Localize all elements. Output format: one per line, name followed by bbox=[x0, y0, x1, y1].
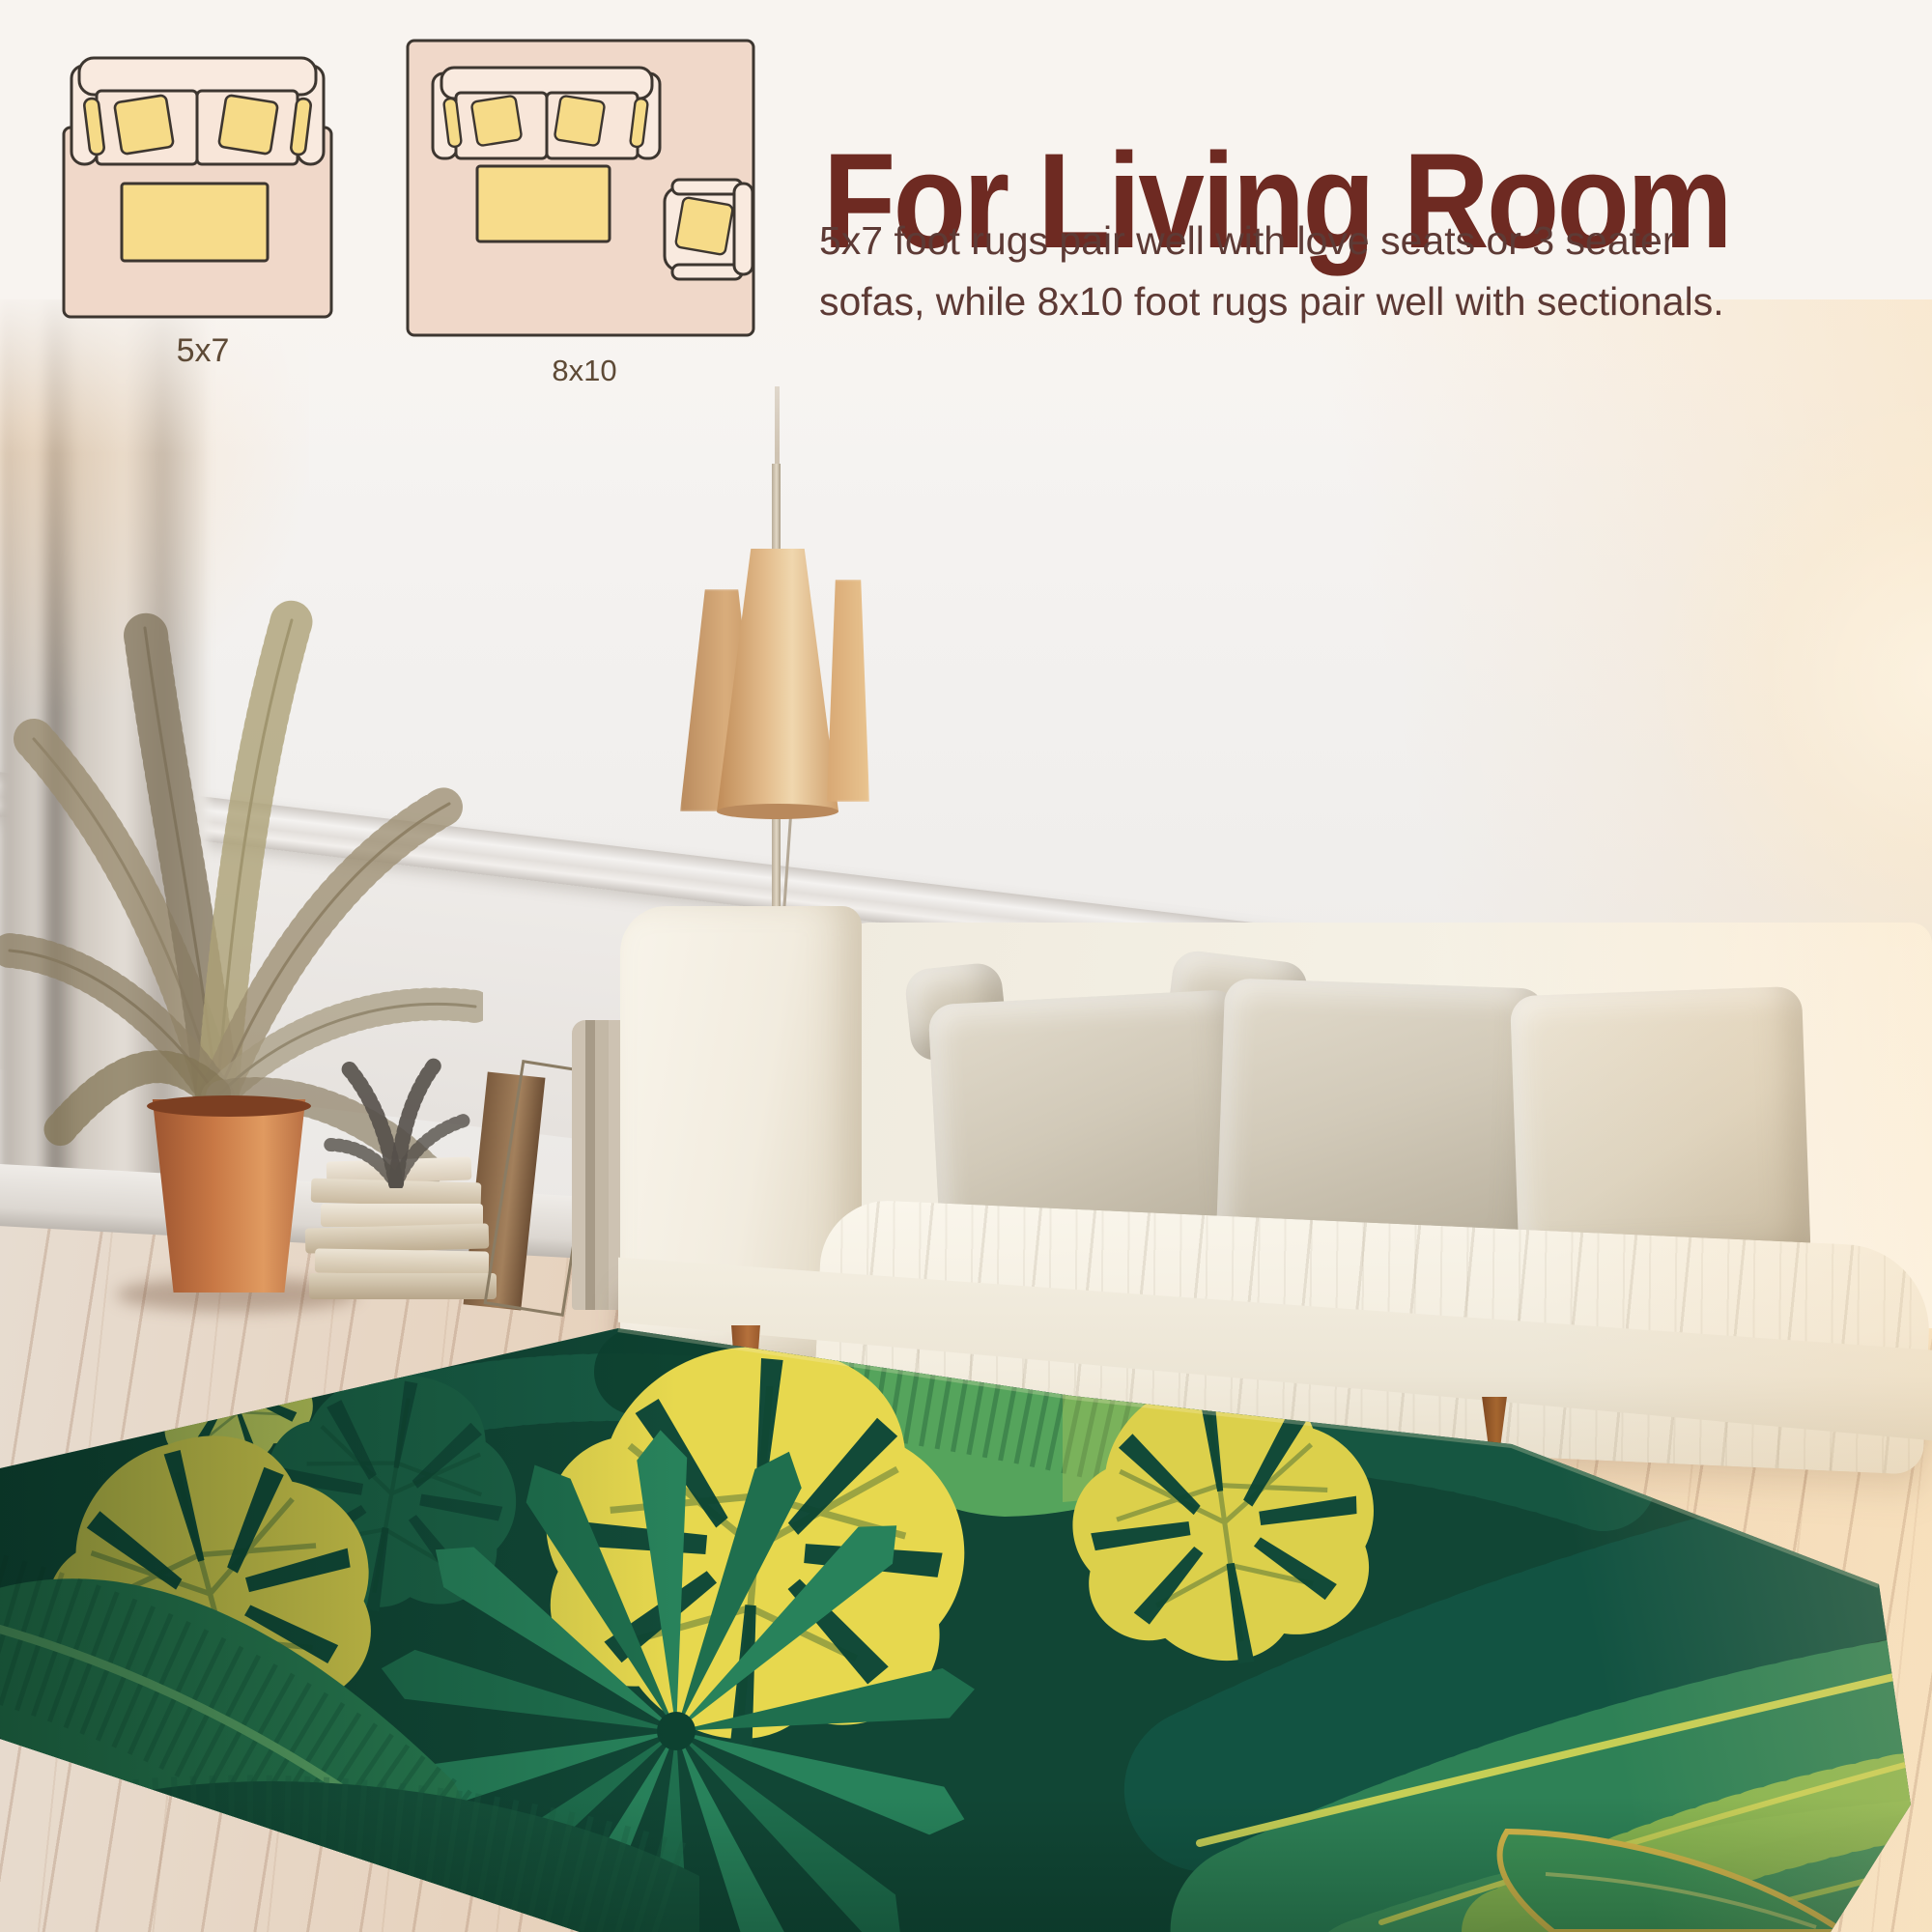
lamp-shade-rim bbox=[717, 804, 838, 819]
tropical-rug bbox=[0, 1256, 1932, 1932]
rug-size-infographic: For Living Room 5x7 foot rugs pair well … bbox=[0, 0, 1932, 1932]
lamp-finial bbox=[775, 386, 780, 469]
lamp-shade-side bbox=[827, 580, 869, 802]
dried-ornament bbox=[319, 1053, 473, 1188]
floor-lamp bbox=[667, 377, 879, 1053]
lamp-shade-front bbox=[717, 549, 838, 811]
rug-size-label-5x7b: 5x7 bbox=[58, 332, 348, 370]
living-room-photo bbox=[0, 290, 1932, 1932]
plant-pot-rim bbox=[147, 1095, 311, 1117]
rug-size-label-8x10: 8x10 bbox=[401, 354, 768, 388]
rug-size-diagram-5x7 bbox=[58, 39, 348, 338]
description-line-2: sofas, while 8x10 foot rugs pair well wi… bbox=[819, 271, 1724, 332]
description: 5x7 foot rugs pair well with love seats … bbox=[819, 211, 1724, 332]
description-line-1: 5x7 foot rugs pair well with love seats … bbox=[819, 211, 1724, 271]
rug-size-diagram-8x10 bbox=[401, 17, 768, 351]
